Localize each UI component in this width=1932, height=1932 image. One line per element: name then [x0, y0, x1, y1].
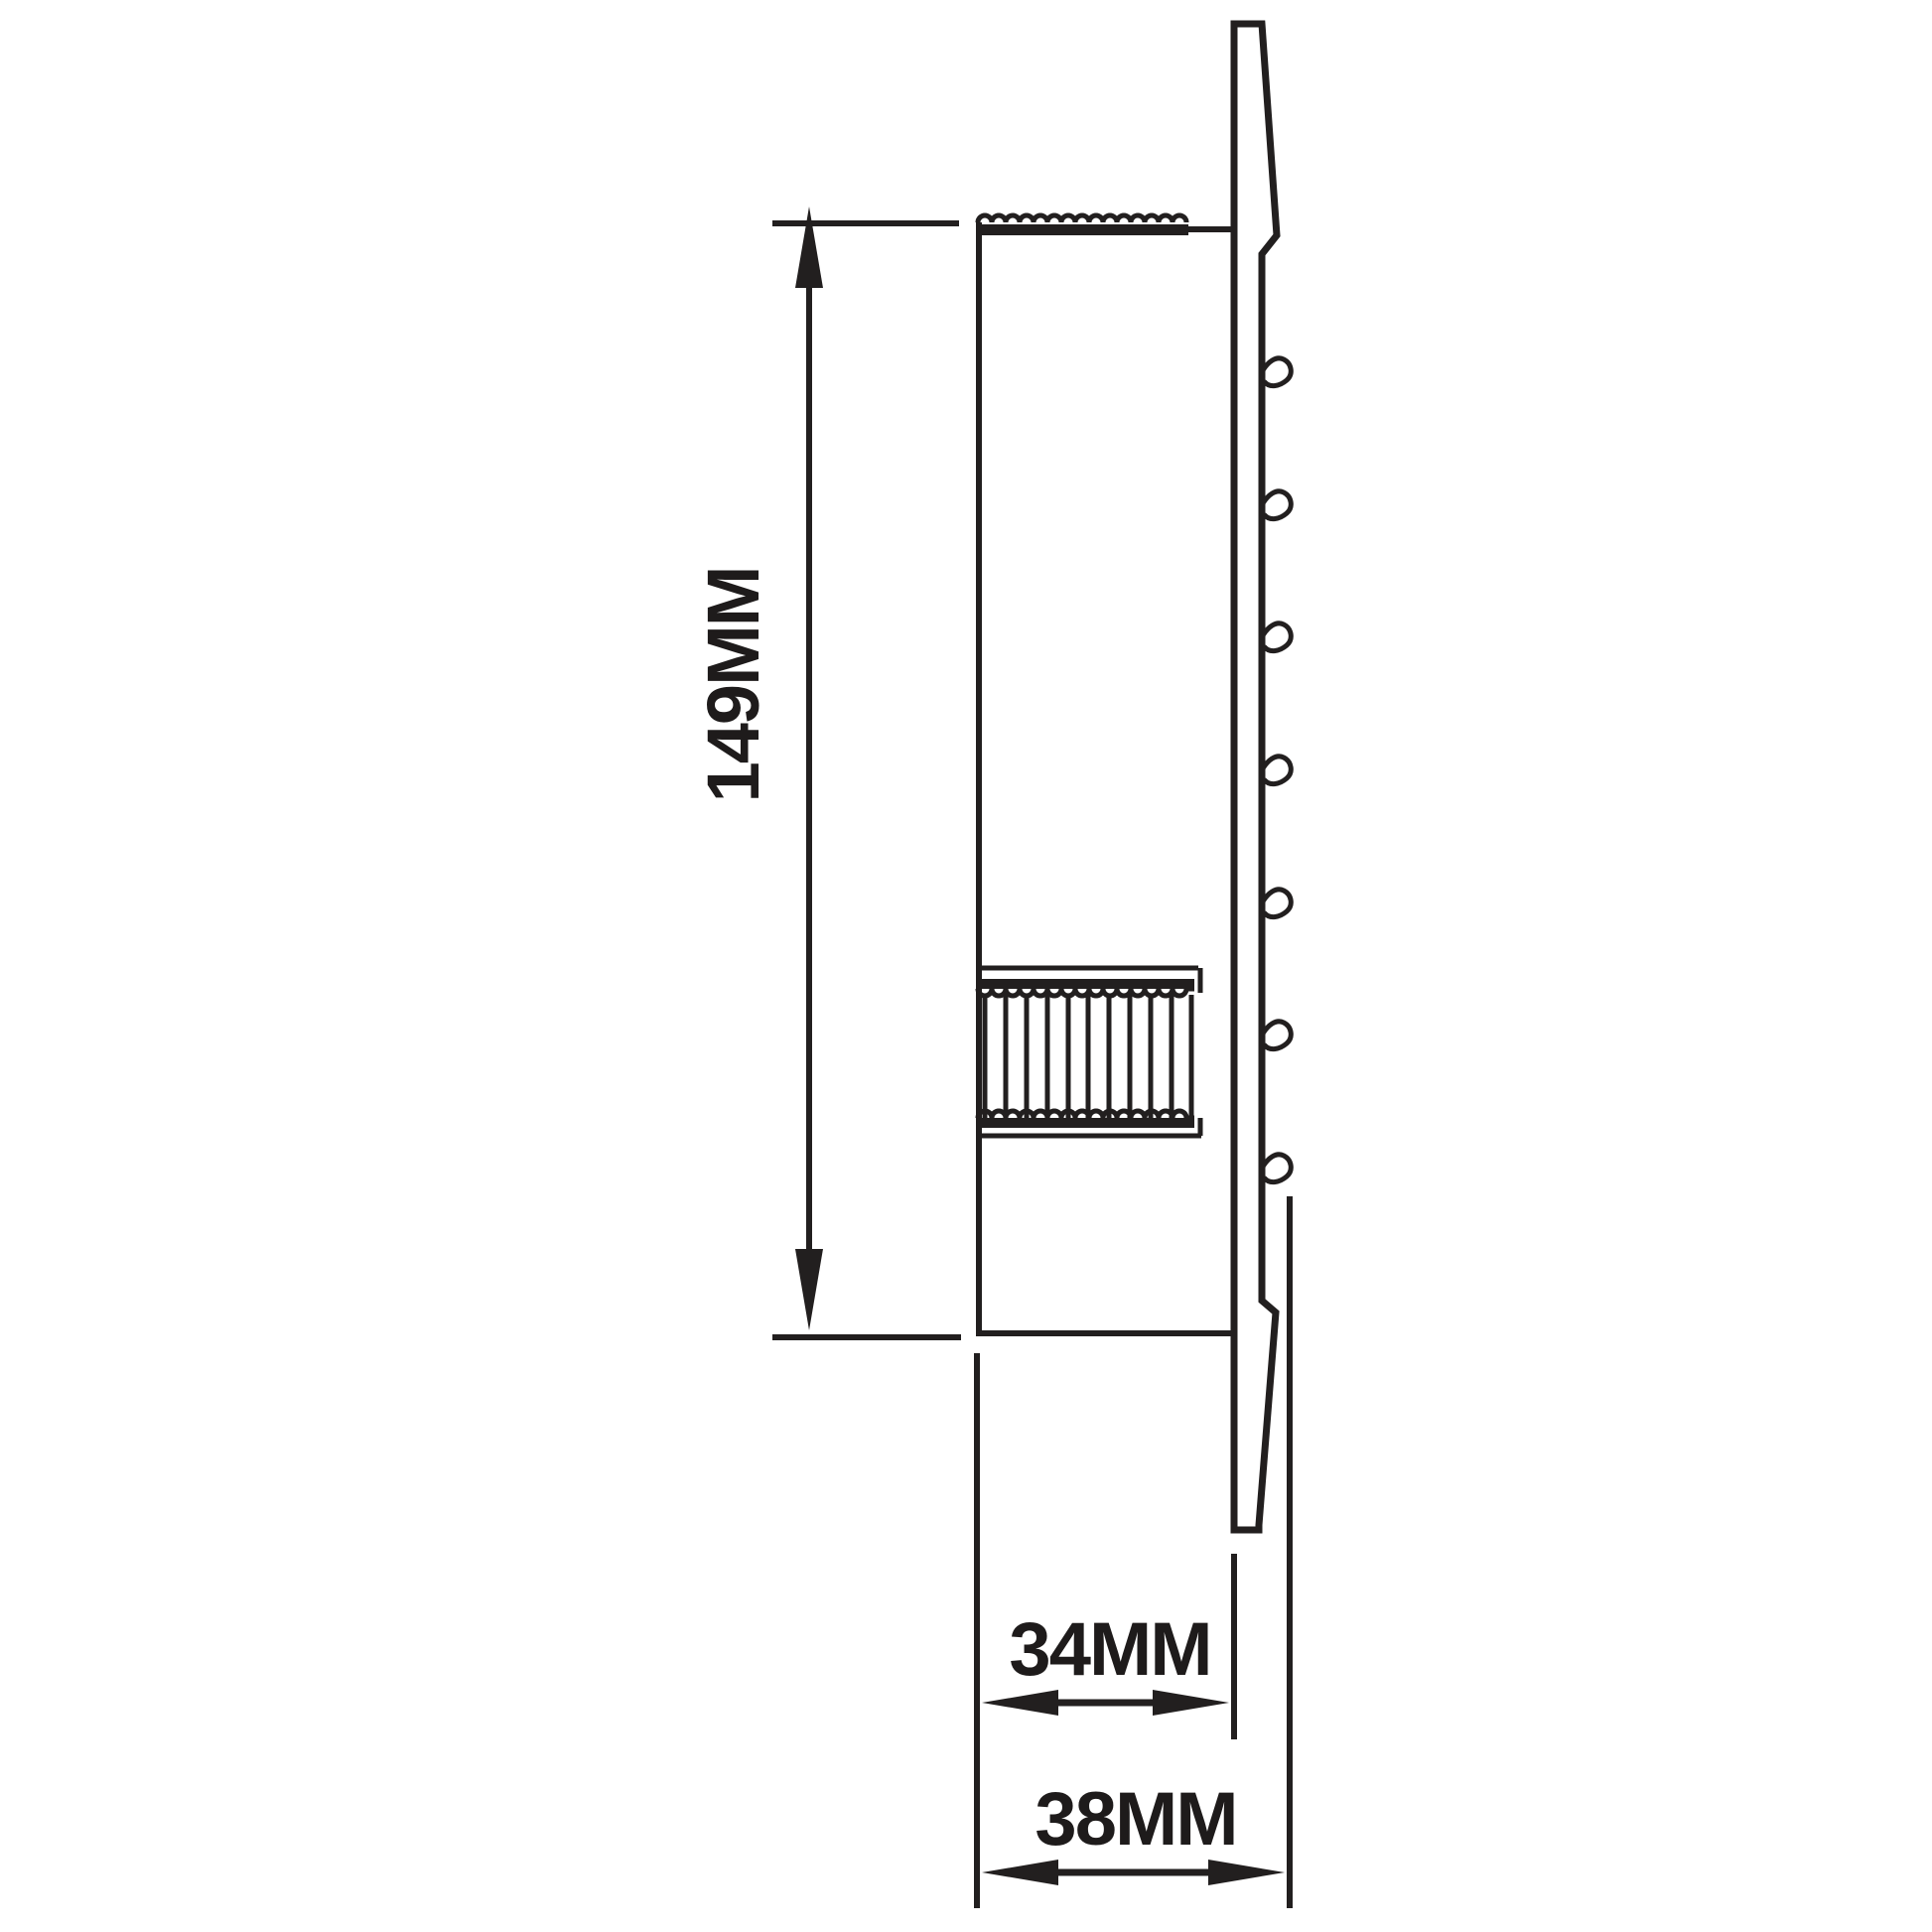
spigot-body [976, 215, 1236, 1333]
arrowhead-right-icon [1153, 1690, 1229, 1716]
arrowhead-left-icon [982, 1690, 1058, 1716]
flange-barb [1263, 1155, 1291, 1182]
flange-barb [1263, 491, 1291, 519]
dimension-label-height: 149MM [692, 568, 774, 803]
rib-top-scallops [978, 989, 1194, 996]
flange-barb [1263, 890, 1291, 917]
side-profile-drawing: 149MM [0, 0, 1932, 1932]
arrowhead-down-icon [795, 1249, 823, 1330]
flange-barb [1263, 1022, 1291, 1049]
rib-bottom-band [978, 1118, 1194, 1128]
flange-outline [1234, 24, 1277, 1530]
dimension-34mm: 34MM [982, 1607, 1229, 1716]
arrowhead-right-icon [1208, 1860, 1285, 1885]
flange-barb [1263, 358, 1291, 386]
flange-barb [1263, 757, 1291, 784]
flange-barb [1263, 623, 1291, 651]
serrated-band [978, 224, 1188, 235]
height-dimension: 149MM [692, 207, 961, 1337]
dimension-label-34mm: 34MM [1009, 1607, 1210, 1692]
face-plate-flange [1234, 24, 1291, 1530]
flange-barbs [1263, 358, 1291, 1182]
dimension-label-38mm: 38MM [1035, 1777, 1236, 1862]
technical-drawing-canvas: 149MM [0, 0, 1932, 1932]
rib-top-band [978, 979, 1194, 989]
rib-fins [985, 995, 1191, 1118]
corrugated-rib-section [978, 968, 1201, 1136]
dimension-38mm: 38MM [982, 1777, 1285, 1885]
arrowhead-up-icon [795, 207, 823, 288]
serrated-top-edge [978, 215, 1186, 222]
arrowhead-left-icon [982, 1860, 1058, 1885]
